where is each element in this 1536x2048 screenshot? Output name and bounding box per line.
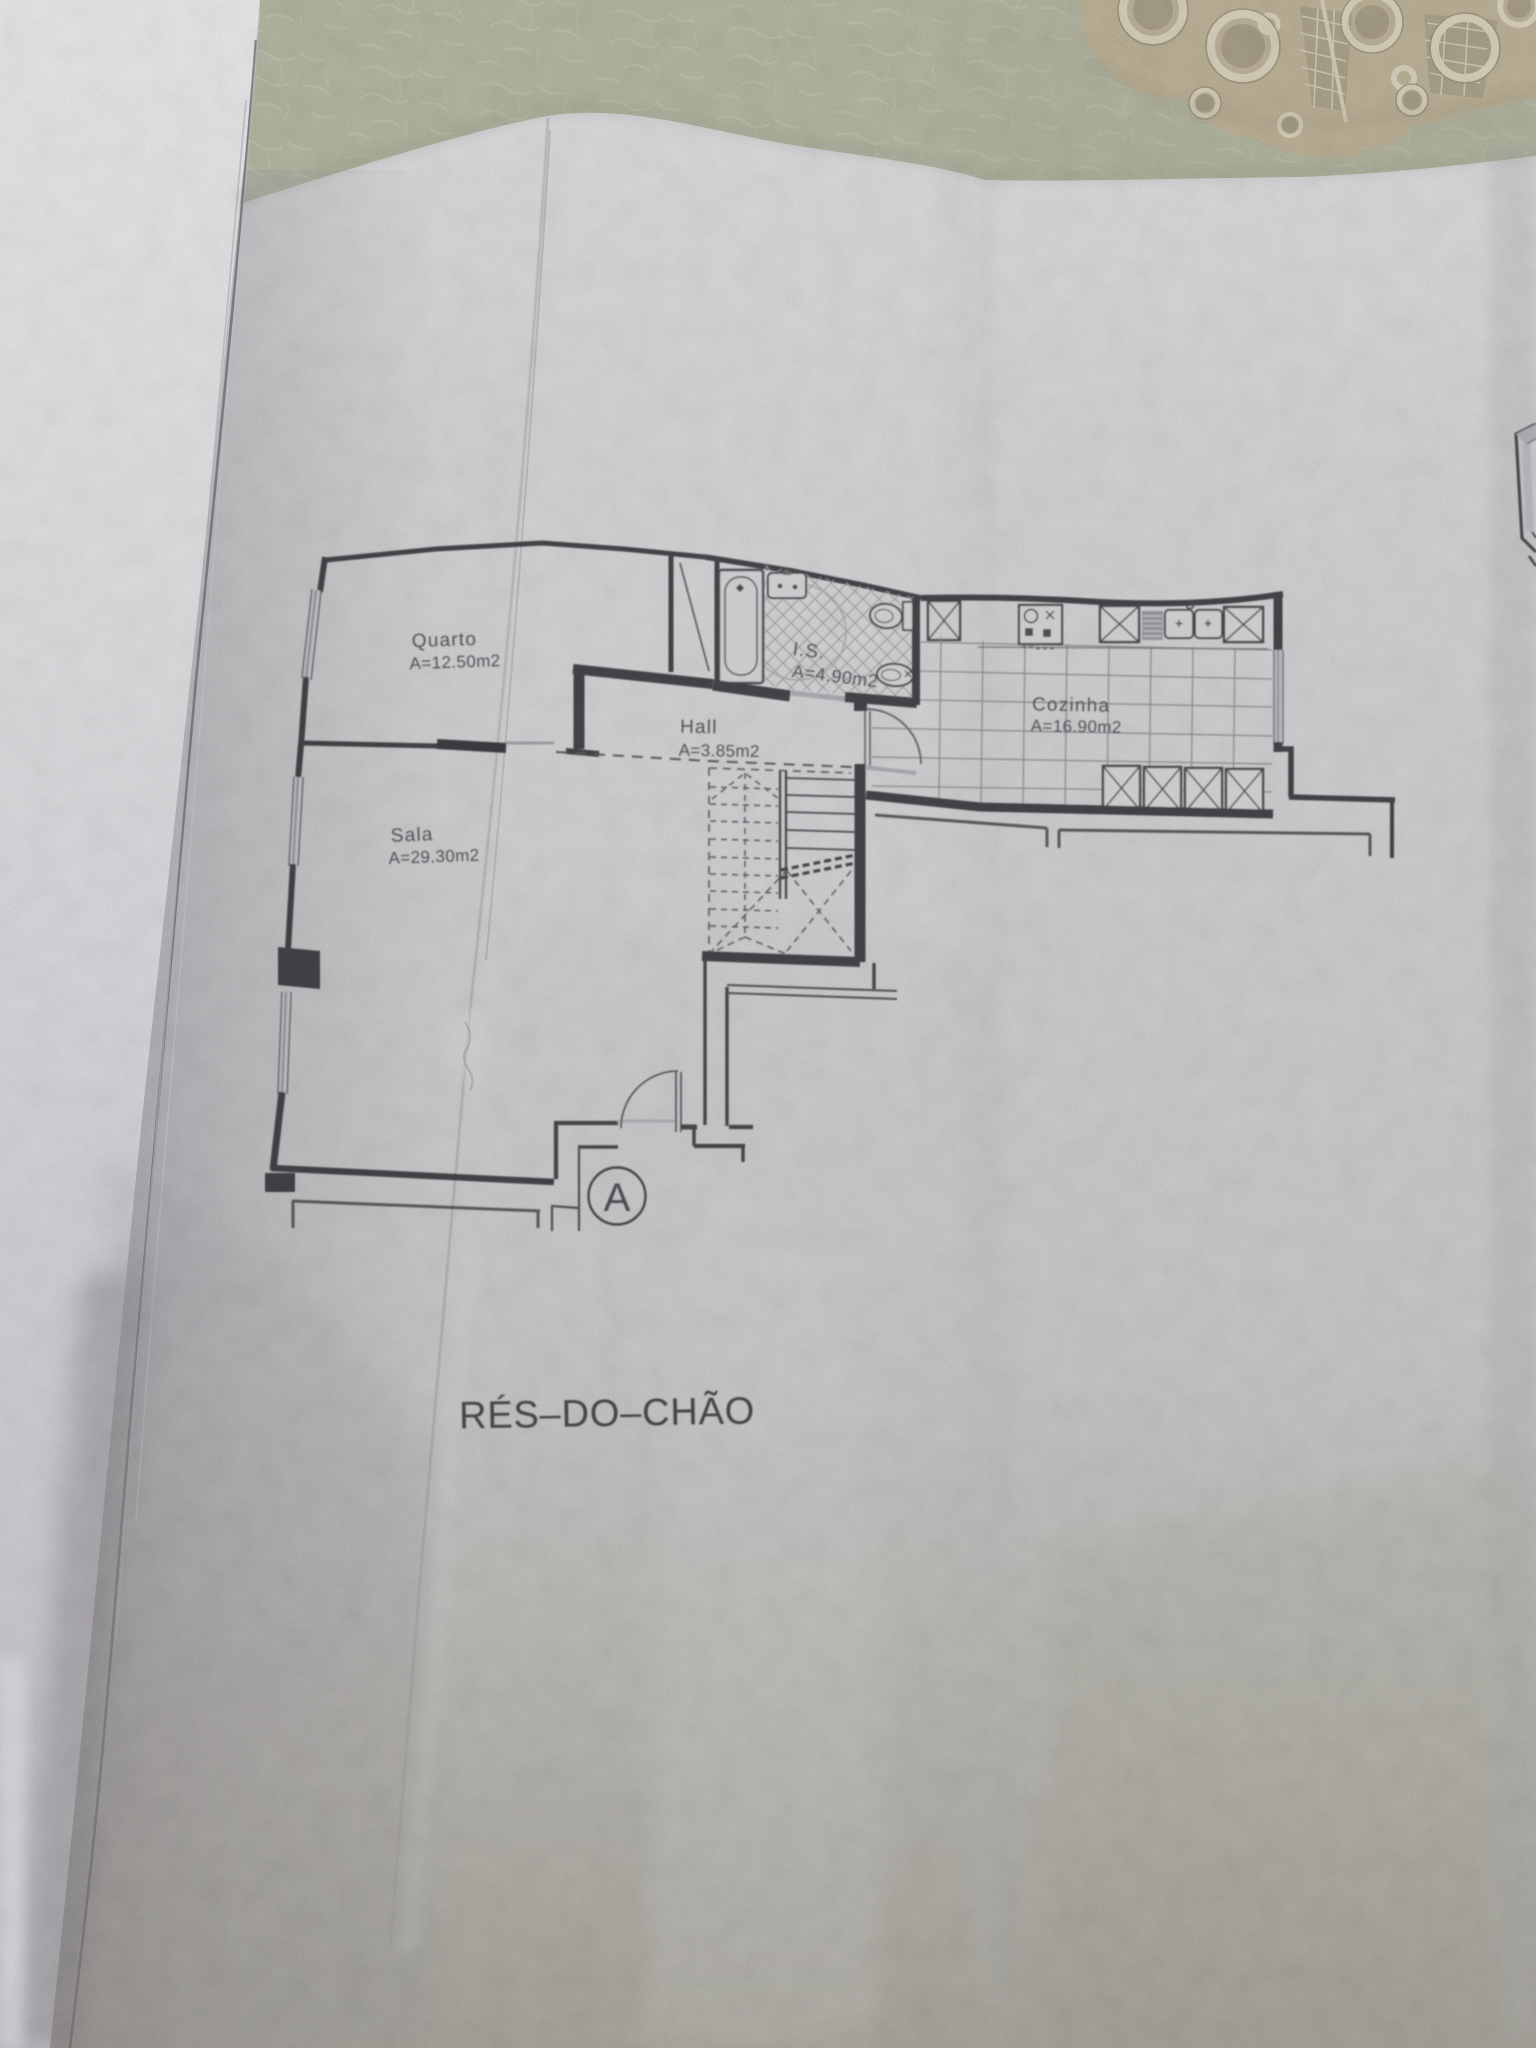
svg-text:Cozinha: Cozinha bbox=[1032, 694, 1110, 716]
svg-text:A=12.50m2: A=12.50m2 bbox=[409, 651, 501, 673]
svg-text:A=29.30m2: A=29.30m2 bbox=[388, 846, 480, 868]
svg-text:A: A bbox=[604, 1176, 631, 1220]
svg-text:I.S.: I.S. bbox=[792, 639, 827, 664]
svg-text:RÉS–DO–CHÃO: RÉS–DO–CHÃO bbox=[459, 1389, 756, 1437]
svg-text:A=16.90m2: A=16.90m2 bbox=[1031, 716, 1122, 737]
svg-text:A=3.85m2: A=3.85m2 bbox=[679, 741, 760, 761]
svg-text:Sala: Sala bbox=[390, 824, 434, 846]
svg-text:Quarto: Quarto bbox=[411, 629, 477, 652]
svg-text:Hall: Hall bbox=[680, 717, 718, 739]
